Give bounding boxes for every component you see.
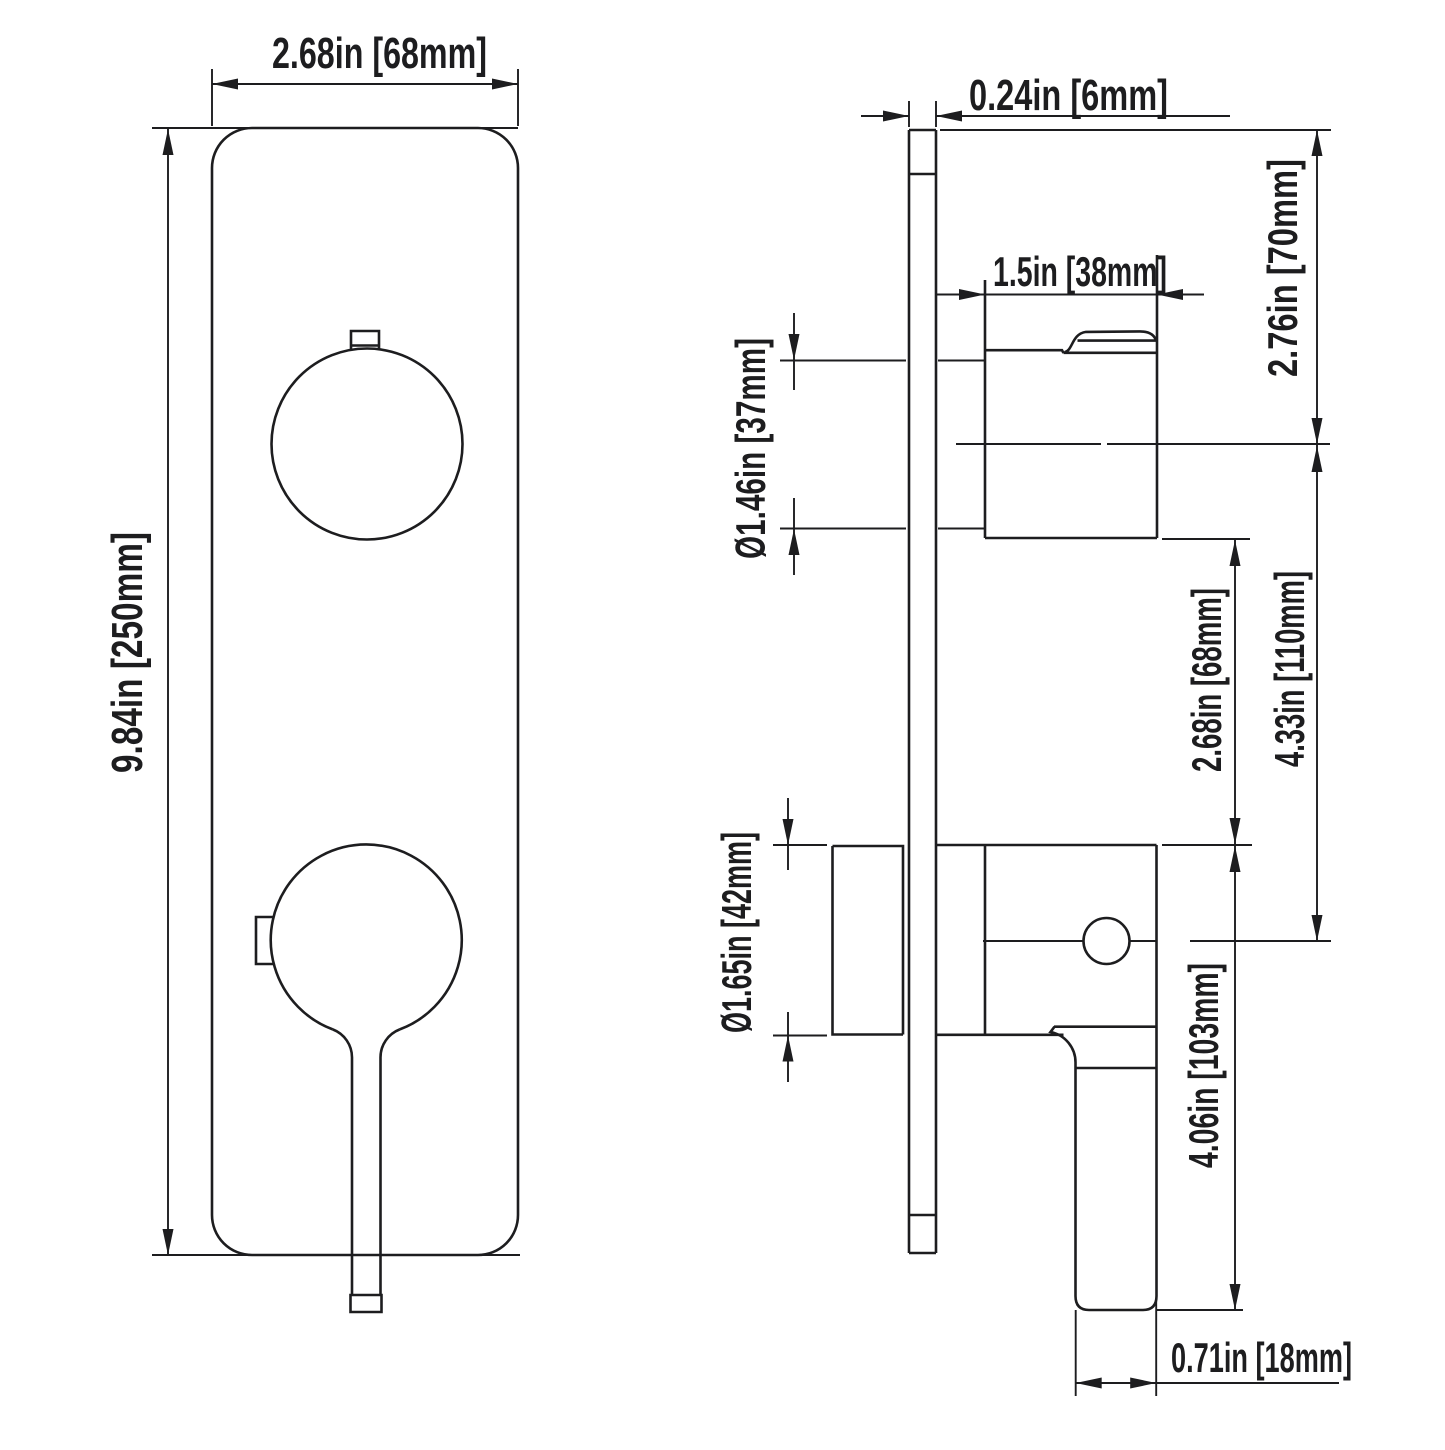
svg-text:0.24in [6mm]: 0.24in [6mm] xyxy=(969,71,1168,120)
svg-text:2.76in [70mm]: 2.76in [70mm] xyxy=(1259,159,1306,377)
svg-text:0.71in [18mm]: 0.71in [18mm] xyxy=(1171,1334,1352,1381)
svg-text:Ø1.65in [42mm]: Ø1.65in [42mm] xyxy=(713,832,760,1033)
svg-text:Ø1.46in [37mm]: Ø1.46in [37mm] xyxy=(727,338,774,559)
svg-text:1.5in [38mm]: 1.5in [38mm] xyxy=(993,248,1167,295)
svg-text:2.68in [68mm]: 2.68in [68mm] xyxy=(272,29,487,78)
svg-text:4.06in [103mm]: 4.06in [103mm] xyxy=(1180,963,1227,1168)
svg-text:4.33in [110mm]: 4.33in [110mm] xyxy=(1266,571,1313,767)
svg-text:9.84in [250mm]: 9.84in [250mm] xyxy=(103,532,152,773)
svg-text:2.68in [68mm]: 2.68in [68mm] xyxy=(1183,588,1230,772)
